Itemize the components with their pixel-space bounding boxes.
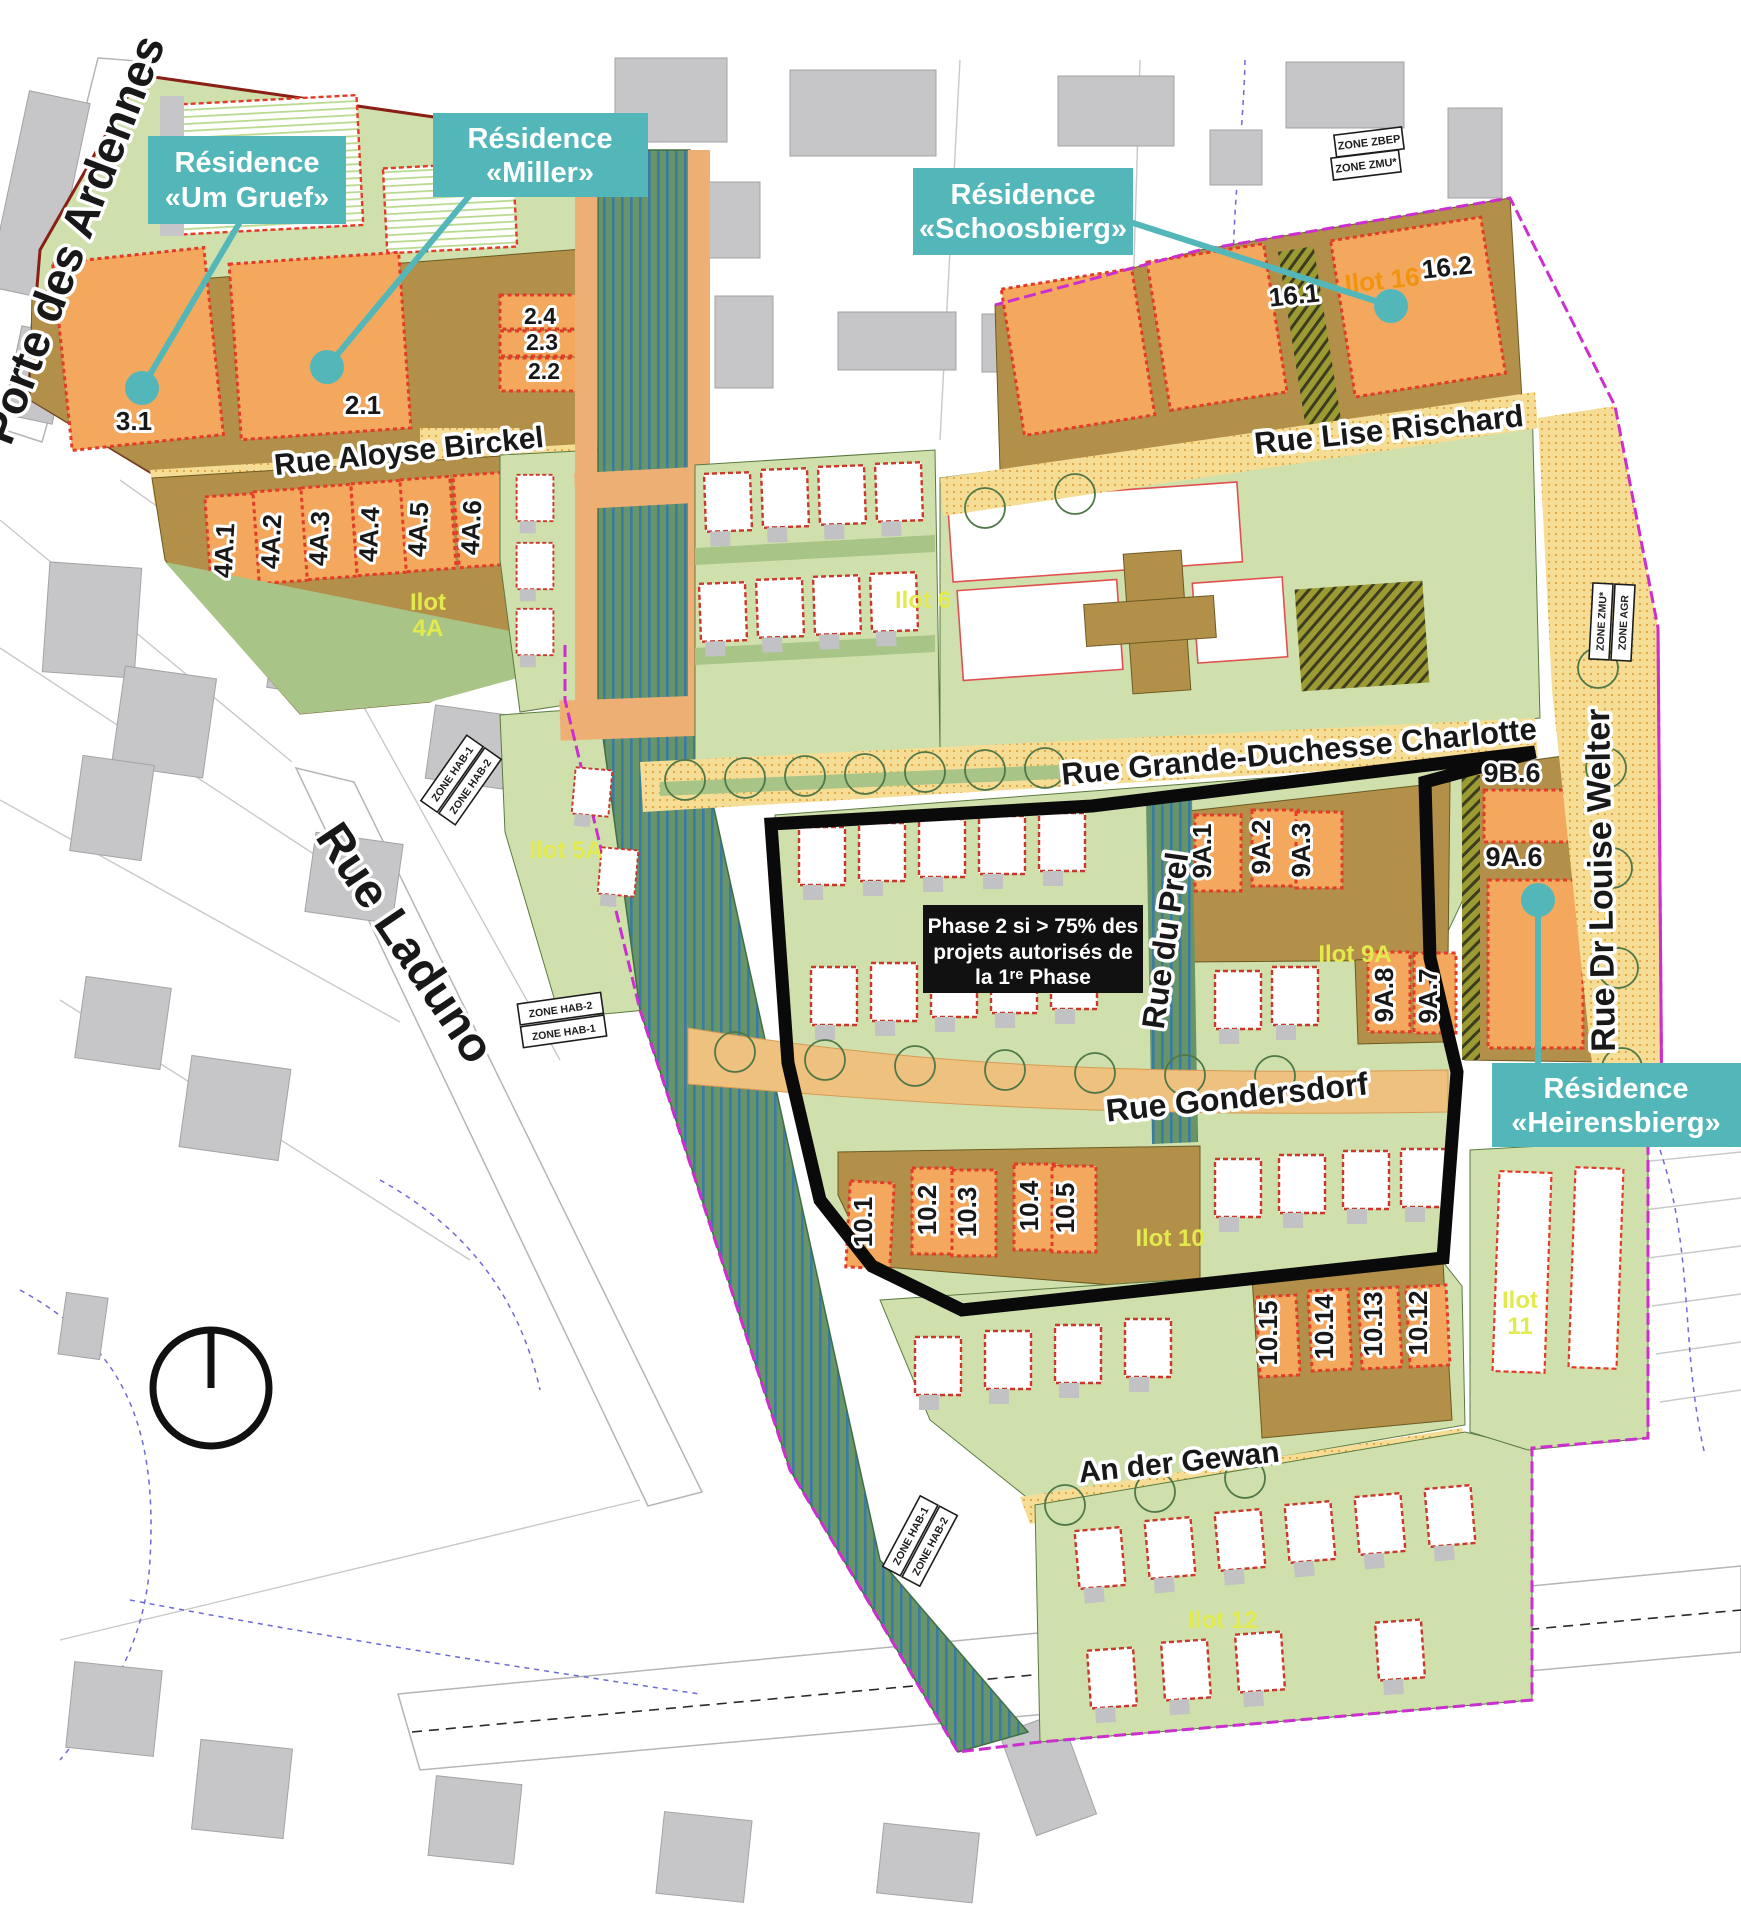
phase-note-line3: la 1ʳᵉ Phase [975,966,1091,989]
lot-label-4a-1: 4A.1 [208,522,241,578]
callout-miller-line1: Résidence [467,123,612,155]
lot-label-10-5: 10.5 [1050,1183,1080,1234]
lot-label-10-1: 10.1 [848,1197,878,1248]
lot-label-2-1: 2.1 [345,390,381,420]
north-compass-icon [153,1330,269,1446]
callout-heirensbierg-line2: «Heirensbierg» [1511,1107,1721,1139]
callout-dot [1521,883,1555,917]
lot-label-9a-8: 9A.8 [1369,968,1399,1023]
street-label-rue-laduno: Rue Laduno [305,814,504,1074]
ilot-label-4a-line2: 4A [413,615,444,642]
phase-note-line1: Phase 2 si > 75% des [928,915,1139,938]
lot-label-10-13: 10.13 [1358,1291,1388,1356]
lot-label-9a-6: 9A.6 [1485,842,1542,872]
callout-dot [1374,289,1408,323]
lot-label-9a-7: 9A.7 [1413,969,1443,1024]
lot-label-9b-6: 9B.6 [1483,758,1540,788]
callout-heirensbierg-line1: Résidence [1543,1073,1688,1105]
lot-label-16-2: 16.2 [1420,249,1473,284]
lot-label-10-15: 10.15 [1253,1300,1283,1365]
lot-label-9a-1: 9A.1 [1187,824,1217,879]
phase-note: Phase 2 si > 75% des projets autorisés d… [923,905,1143,993]
lot-label-2-2: 2.2 [528,358,560,384]
lot-label-10-3: 10.3 [952,1187,982,1238]
ilot-label-6: Ilot 6 [895,587,951,614]
callout-dot [125,371,159,405]
street-label-rue-dr-louise-welter: Rue Dr Louise Welter [1579,708,1623,1052]
callout-schoosbierg-line1: Résidence [950,179,1095,211]
callout-um-gruef-line2: «Um Gruef» [165,182,329,214]
ilot-label-11-line1: Ilot [1502,1287,1538,1314]
lot-label-10-2: 10.2 [912,1185,942,1236]
ilot-label-10: Ilot 10 [1135,1225,1204,1252]
lot-label-4a-5: 4A.5 [402,501,435,557]
callout-um-gruef-line1: Résidence [174,147,319,179]
phase-note-line2: projets autorisés de [933,941,1133,964]
plan-canvas: Porte des Ardennes Rue Aloyse Birckel Ru… [0,0,1741,1920]
lot-label-4a-4: 4A.4 [353,506,386,563]
lot-label-4a-3: 4A.3 [303,510,336,566]
callout-dot [310,350,344,384]
lot-label-4a-2: 4A.2 [255,513,288,569]
lot-label-10-14: 10.14 [1309,1294,1339,1360]
callout-schoosbierg-line2: «Schoosbierg» [919,213,1127,245]
ilot-label-12: Ilot 12 [1188,1607,1257,1634]
lot-label-4a-6: 4A.6 [455,499,488,555]
urban-development-plan: Porte des Ardennes Rue Aloyse Birckel Ru… [0,0,1741,1920]
lot-label-9a-3: 9A.3 [1286,823,1316,878]
lot-2-1 [229,252,411,439]
lot-label-2-3: 2.3 [526,329,558,355]
ilot-label-9a: Ilot 9A [1318,941,1391,968]
ilot-label-11-line2: 11 [1507,1313,1532,1340]
ilot-label-4a-line1: Ilot [410,589,446,616]
lot-label-3-1: 3.1 [116,406,152,436]
lot-label-2-4: 2.4 [524,303,556,329]
ilot-label-5a: Ilot 5A [529,837,602,864]
lot-label-9a-2: 9A.2 [1246,820,1276,875]
lot-label-10-4: 10.4 [1014,1180,1044,1231]
callout-miller-line2: «Miller» [486,157,594,189]
lot-label-10-12: 10.12 [1403,1290,1433,1355]
